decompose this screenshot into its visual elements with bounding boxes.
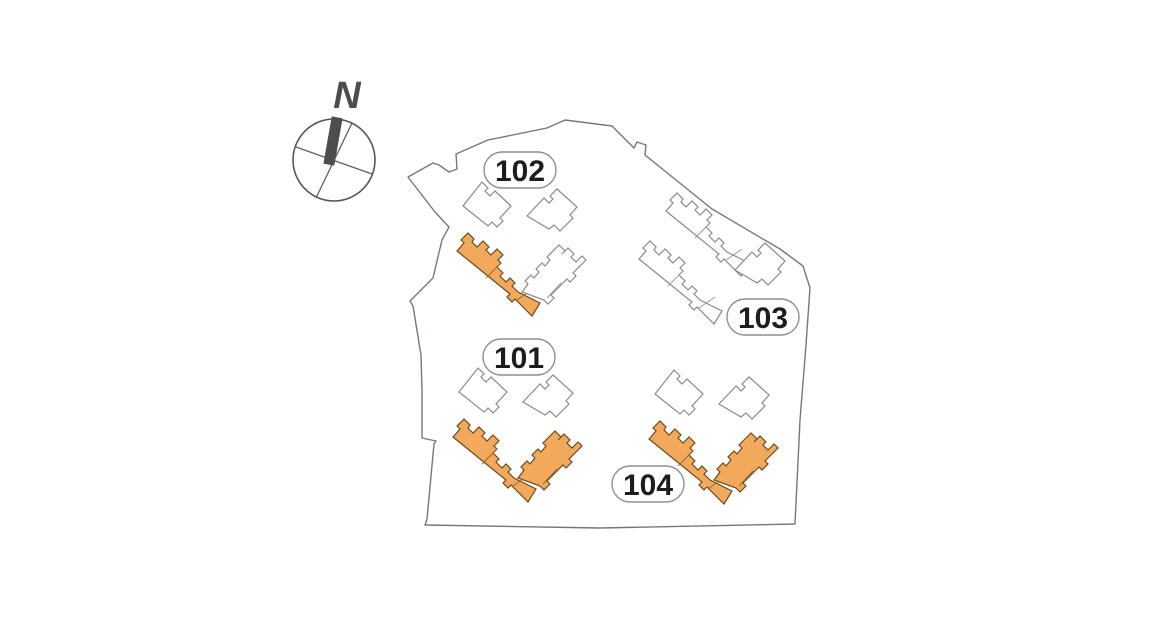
- block-104-label-text: 104: [623, 469, 673, 502]
- compass-north-label: N: [333, 75, 362, 117]
- compass: N: [293, 75, 375, 201]
- block-101-label[interactable]: 101: [483, 339, 555, 375]
- block-104-label[interactable]: 104: [612, 466, 684, 502]
- block-103-label-text: 103: [738, 302, 788, 335]
- site-plan-canvas: N 102 103: [0, 0, 1160, 630]
- block-103-label[interactable]: 103: [727, 299, 799, 335]
- block-101-label-text: 101: [494, 342, 544, 375]
- block-102-label-text: 102: [495, 155, 545, 188]
- site-plan-page: N 102 103: [0, 0, 1160, 630]
- block-102-label[interactable]: 102: [484, 152, 556, 188]
